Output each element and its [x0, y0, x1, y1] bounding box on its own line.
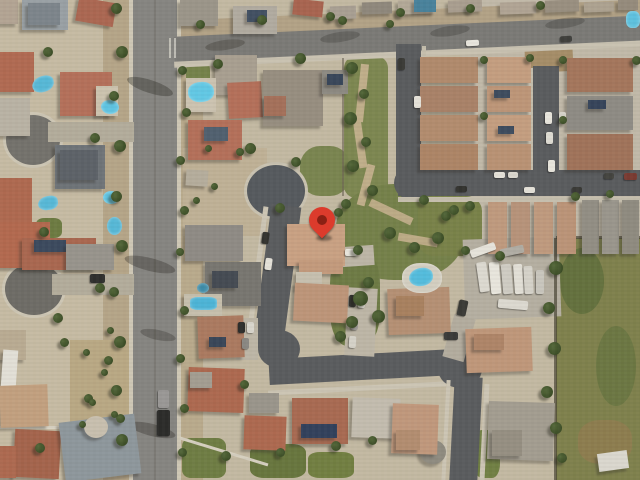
tree	[104, 356, 113, 365]
house-roof	[185, 169, 208, 186]
tree	[111, 385, 122, 396]
house-roof	[498, 126, 514, 134]
house-roof	[448, 0, 482, 13]
tree	[43, 47, 53, 57]
tree	[353, 291, 368, 306]
vehicle	[524, 187, 535, 193]
house-roof	[209, 337, 226, 347]
swimming-pool	[197, 283, 209, 293]
house-roof	[28, 3, 60, 25]
tree	[211, 183, 218, 190]
vehicle	[545, 112, 552, 124]
tree	[182, 108, 191, 117]
tree	[213, 59, 223, 69]
tree	[559, 116, 567, 124]
house-roof	[293, 283, 349, 324]
road-segment	[169, 38, 171, 58]
house-roof	[243, 415, 286, 450]
tree	[295, 53, 306, 64]
vehicle	[546, 132, 553, 144]
tree	[466, 4, 475, 13]
tree	[331, 441, 341, 451]
tree	[180, 306, 189, 315]
tree	[363, 277, 374, 288]
house-roof	[534, 202, 553, 254]
house-roof	[66, 244, 114, 270]
vehicle	[398, 58, 405, 70]
tree	[396, 8, 405, 17]
tree	[114, 140, 126, 152]
tree	[176, 156, 185, 165]
tree	[236, 148, 244, 156]
tree	[335, 331, 346, 342]
tree	[79, 421, 86, 428]
house-roof	[212, 271, 238, 288]
vehicle	[523, 266, 533, 294]
tree	[353, 245, 363, 255]
tree	[111, 3, 122, 14]
house-roof	[494, 90, 510, 98]
tree	[176, 248, 184, 256]
vehicle	[158, 390, 169, 408]
vehicle	[508, 172, 518, 178]
house-roof	[362, 1, 392, 14]
tree	[39, 227, 49, 237]
tree	[557, 453, 567, 463]
road-segment	[174, 38, 176, 58]
tree	[368, 436, 377, 445]
tree	[196, 20, 205, 29]
tree	[550, 422, 562, 434]
vehicle	[548, 160, 555, 172]
tree	[176, 354, 185, 363]
green-area	[308, 452, 354, 478]
house-roof	[327, 74, 343, 85]
tree	[372, 310, 385, 323]
road-segment	[154, 0, 156, 480]
tree	[116, 46, 128, 58]
tree	[367, 185, 378, 196]
tree	[606, 190, 614, 198]
tree	[359, 89, 369, 99]
house-roof	[567, 134, 633, 170]
house-roof	[1, 350, 19, 389]
tree	[338, 16, 347, 25]
vehicle	[90, 274, 105, 283]
house-roof	[622, 200, 639, 254]
green-area	[560, 248, 604, 314]
tree	[95, 283, 105, 293]
house-roof	[0, 52, 34, 92]
vehicle	[247, 322, 254, 333]
tree	[275, 203, 285, 213]
swimming-pool	[107, 217, 122, 235]
tree	[326, 12, 335, 21]
tree	[536, 1, 545, 10]
house-roof	[190, 372, 212, 388]
tree	[541, 386, 553, 398]
house-roof	[0, 384, 49, 428]
tree	[111, 191, 122, 202]
tree	[114, 336, 126, 348]
tree	[240, 380, 249, 389]
swimming-pool	[190, 297, 217, 310]
road-segment	[449, 376, 482, 480]
vehicle	[624, 173, 637, 180]
tree	[346, 62, 358, 74]
tree	[346, 316, 358, 328]
tree	[107, 327, 114, 334]
tree	[257, 15, 267, 25]
tree	[276, 448, 285, 457]
tree	[384, 227, 396, 239]
tree	[35, 443, 45, 453]
swimming-pool	[626, 11, 640, 28]
vehicle	[466, 40, 479, 47]
house-roof	[582, 200, 599, 254]
tree	[111, 411, 118, 418]
house-roof	[60, 150, 98, 180]
tree	[101, 369, 108, 376]
tree	[386, 20, 394, 28]
house-roof	[487, 144, 531, 170]
house-roof	[584, 1, 614, 12]
house-roof	[264, 96, 286, 116]
tree	[419, 195, 429, 205]
house-roof	[34, 240, 66, 252]
tree	[480, 112, 488, 120]
house-roof	[292, 0, 324, 18]
satellite-map[interactable]	[0, 0, 640, 480]
tree	[116, 434, 128, 446]
tree	[549, 261, 563, 275]
house-roof	[618, 0, 638, 10]
tree	[341, 199, 351, 209]
tree	[116, 240, 128, 252]
tree	[178, 448, 187, 457]
vehicle	[414, 96, 421, 108]
tree	[461, 246, 470, 255]
tree	[193, 197, 200, 204]
house-roof	[204, 127, 228, 141]
tree	[409, 242, 420, 253]
tree	[178, 66, 187, 75]
tree	[90, 133, 100, 143]
tree	[632, 56, 640, 65]
tree	[221, 451, 231, 461]
vehicle	[157, 410, 170, 436]
tree	[526, 54, 534, 62]
tree	[89, 399, 96, 406]
tree	[245, 143, 256, 154]
vehicle	[604, 173, 614, 179]
house-roof	[227, 81, 263, 119]
house-roof	[84, 416, 108, 438]
house-roof	[0, 98, 30, 136]
house-roof	[13, 429, 61, 479]
house-roof	[0, 178, 32, 222]
house-roof	[420, 57, 478, 83]
tree	[344, 112, 357, 125]
house-roof	[487, 57, 531, 83]
tree	[53, 313, 63, 323]
tree	[465, 201, 475, 211]
house-roof	[396, 296, 424, 316]
vehicle	[456, 186, 467, 192]
tree	[480, 56, 488, 64]
tree	[432, 232, 444, 244]
house-roof	[396, 430, 420, 450]
tree	[334, 208, 343, 217]
house-roof	[545, 0, 579, 13]
house-roof	[602, 200, 619, 254]
house-roof	[492, 430, 522, 456]
tree	[180, 404, 189, 413]
vehicle	[238, 322, 245, 333]
house-roof	[185, 225, 243, 261]
tree	[347, 160, 359, 172]
house-roof	[420, 115, 478, 141]
tree	[571, 192, 580, 201]
vehicle	[536, 270, 544, 294]
tree	[548, 342, 561, 355]
tree	[559, 56, 567, 64]
tree	[205, 145, 212, 152]
house-roof	[0, 0, 18, 24]
house-roof	[0, 446, 16, 478]
house-roof	[420, 86, 478, 112]
tree	[60, 338, 69, 347]
vehicle	[242, 338, 249, 349]
pin-dot-icon	[315, 213, 329, 227]
vehicle	[349, 336, 357, 348]
house-roof	[567, 58, 633, 92]
tree	[109, 91, 119, 101]
house-roof	[414, 0, 436, 12]
tree	[361, 137, 371, 147]
tree	[180, 206, 189, 215]
house-roof	[474, 334, 504, 350]
green-area	[596, 326, 636, 406]
vehicle	[444, 332, 458, 340]
tree	[109, 287, 119, 297]
tree	[291, 157, 301, 167]
tree	[83, 349, 90, 356]
house-roof	[557, 202, 576, 254]
house-roof	[500, 1, 536, 14]
house-roof	[301, 424, 337, 438]
house-roof	[420, 144, 478, 170]
tree	[441, 211, 451, 221]
tree	[543, 302, 555, 314]
house-roof	[588, 100, 606, 109]
tree	[495, 251, 505, 261]
vehicle	[494, 172, 505, 178]
house-roof	[249, 393, 279, 413]
vehicle	[560, 36, 572, 43]
